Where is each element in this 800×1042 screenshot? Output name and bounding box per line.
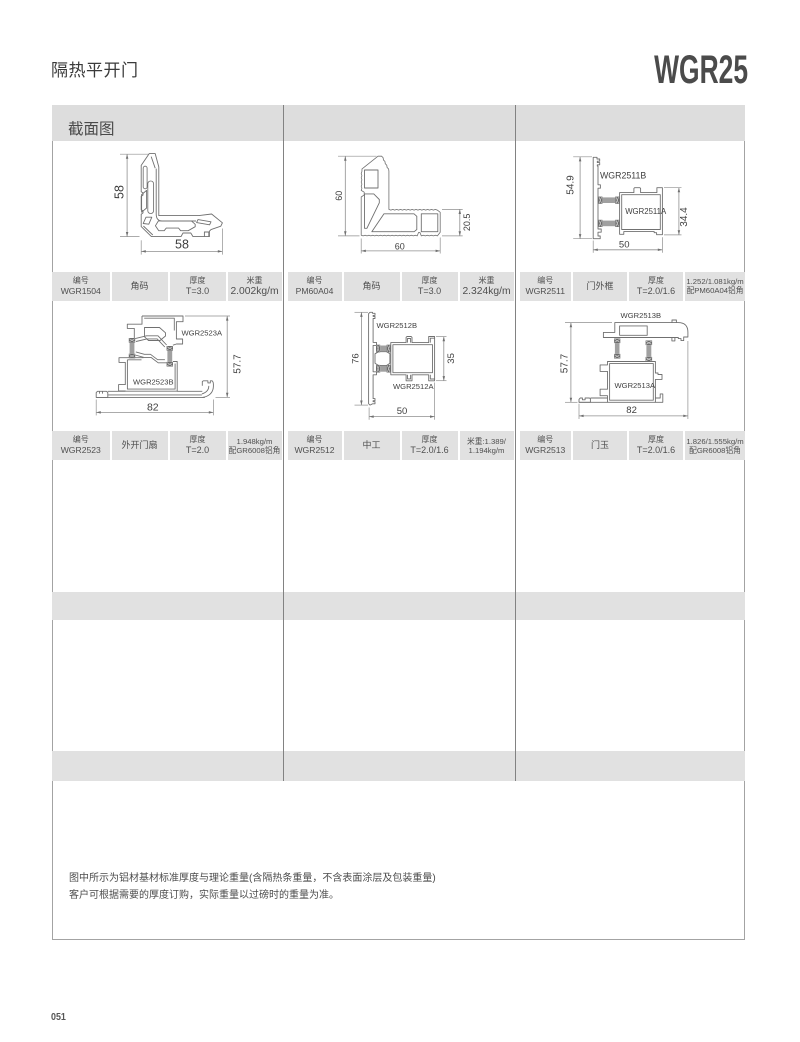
svg-text:54.9: 54.9 [565,175,576,195]
svg-text:35: 35 [446,353,457,364]
svg-text:60: 60 [395,241,405,251]
svg-text:WGR2513B: WGR2513B [621,311,662,320]
svg-text:50: 50 [619,240,630,251]
svg-text:57.7: 57.7 [233,354,244,374]
svg-text:WGR2511A: WGR2511A [625,207,667,216]
svg-text:WGR2512A: WGR2512A [393,382,434,391]
svg-text:58: 58 [175,237,189,251]
svg-text:58: 58 [113,185,127,199]
svg-text:WGR2512B: WGR2512B [377,321,418,330]
svg-text:82: 82 [626,405,637,416]
svg-text:WGR2523B: WGR2523B [133,377,174,386]
svg-text:60: 60 [334,191,344,201]
svg-text:76: 76 [350,353,361,364]
svg-text:50: 50 [397,406,408,417]
svg-text:20.5: 20.5 [462,214,472,232]
svg-text:57.7: 57.7 [560,353,571,373]
svg-text:34.4: 34.4 [679,207,690,227]
svg-text:WGR2523A: WGR2523A [182,329,223,338]
svg-text:WGR2511B: WGR2511B [600,170,646,180]
svg-text:WGR2513A: WGR2513A [615,381,656,390]
svg-text:82: 82 [147,401,159,413]
